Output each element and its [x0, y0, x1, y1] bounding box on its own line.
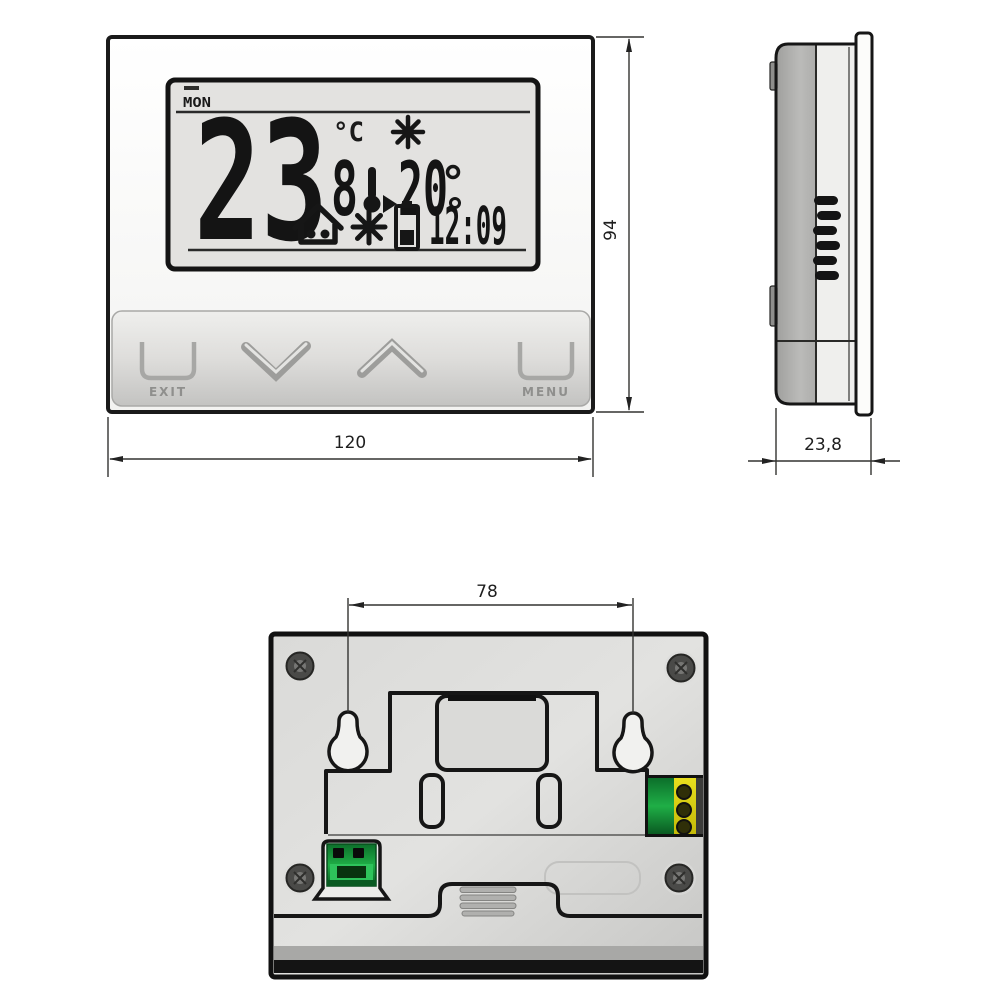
menu-button-label: MENU	[522, 385, 570, 399]
side-front-bezel-plate	[856, 33, 872, 415]
screw-top-right	[664, 651, 698, 685]
lcd-temperature-value: 23	[194, 86, 328, 278]
green-yellow-terminal-block	[645, 775, 703, 837]
screw-bottom-left	[283, 861, 317, 895]
dimension-depth-label: 23,8	[804, 435, 842, 455]
drawing-canvas: MON 23 °C 8 20	[0, 0, 1000, 1000]
back-bottom-edge	[274, 960, 703, 973]
dimension-height-label: 94	[601, 219, 621, 241]
side-view: 23,8	[748, 33, 900, 475]
back-bottom-strip	[274, 946, 703, 962]
front-view: MON 23 °C 8 20	[108, 37, 644, 477]
screw-top-left	[283, 649, 317, 683]
lcd-time-value: 12:09	[429, 197, 507, 257]
dimension-width-label: 120	[334, 433, 366, 453]
exit-button-label: EXIT	[149, 385, 187, 399]
back-view: 78	[271, 582, 706, 977]
back-housing	[271, 634, 706, 977]
sun-icon	[393, 117, 423, 147]
lcd-temperature-unit: °C	[333, 117, 364, 148]
back-center-plate	[437, 696, 547, 770]
sunburst-icon	[353, 211, 385, 243]
green-terminal-block	[315, 841, 388, 899]
dimension-hole-spacing-label: 78	[476, 582, 498, 602]
side-back-cover	[776, 44, 816, 404]
thermostat-dimensional-drawing: MON 23 °C 8 20	[0, 0, 1000, 1000]
screw-bottom-right	[662, 861, 696, 895]
